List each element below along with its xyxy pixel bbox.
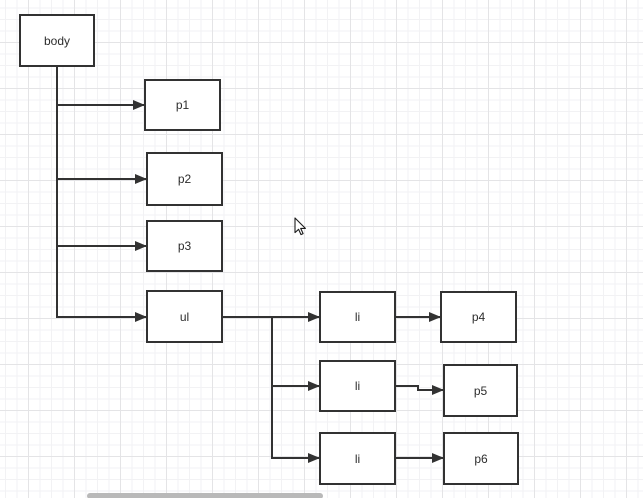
node-label: li [355, 453, 360, 465]
node-label: li [355, 380, 360, 392]
node-label: p5 [474, 385, 487, 397]
edge-body-to-p1[interactable] [57, 67, 144, 105]
node-p3[interactable]: p3 [146, 220, 223, 272]
node-li3[interactable]: li [319, 432, 396, 485]
node-li2[interactable]: li [319, 360, 396, 412]
edge-body-to-p2[interactable] [57, 67, 146, 179]
node-p1[interactable]: p1 [144, 79, 221, 131]
node-ul[interactable]: ul [146, 290, 223, 343]
node-label: p6 [474, 453, 487, 465]
node-p5[interactable]: p5 [443, 364, 518, 417]
edge-ul-to-li3[interactable] [223, 317, 319, 458]
node-label: p2 [178, 173, 191, 185]
node-p6[interactable]: p6 [443, 432, 519, 485]
horizontal-scrollbar-thumb[interactable] [87, 493, 323, 498]
node-label: p3 [178, 240, 191, 252]
node-label: ul [180, 311, 189, 323]
node-body[interactable]: body [19, 14, 95, 67]
edge-body-to-p3[interactable] [57, 67, 146, 246]
node-p2[interactable]: p2 [146, 152, 223, 206]
connector-layer [0, 0, 643, 498]
node-label: li [355, 311, 360, 323]
node-p4[interactable]: p4 [440, 291, 517, 343]
diagram-canvas[interactable]: bodyp1p2p3ullip4lip5lip6 [0, 0, 643, 498]
edge-li2-to-p5[interactable] [396, 386, 443, 390]
node-label: p1 [176, 99, 189, 111]
node-li1[interactable]: li [319, 291, 396, 343]
node-label: body [44, 35, 70, 47]
node-label: p4 [472, 311, 485, 323]
